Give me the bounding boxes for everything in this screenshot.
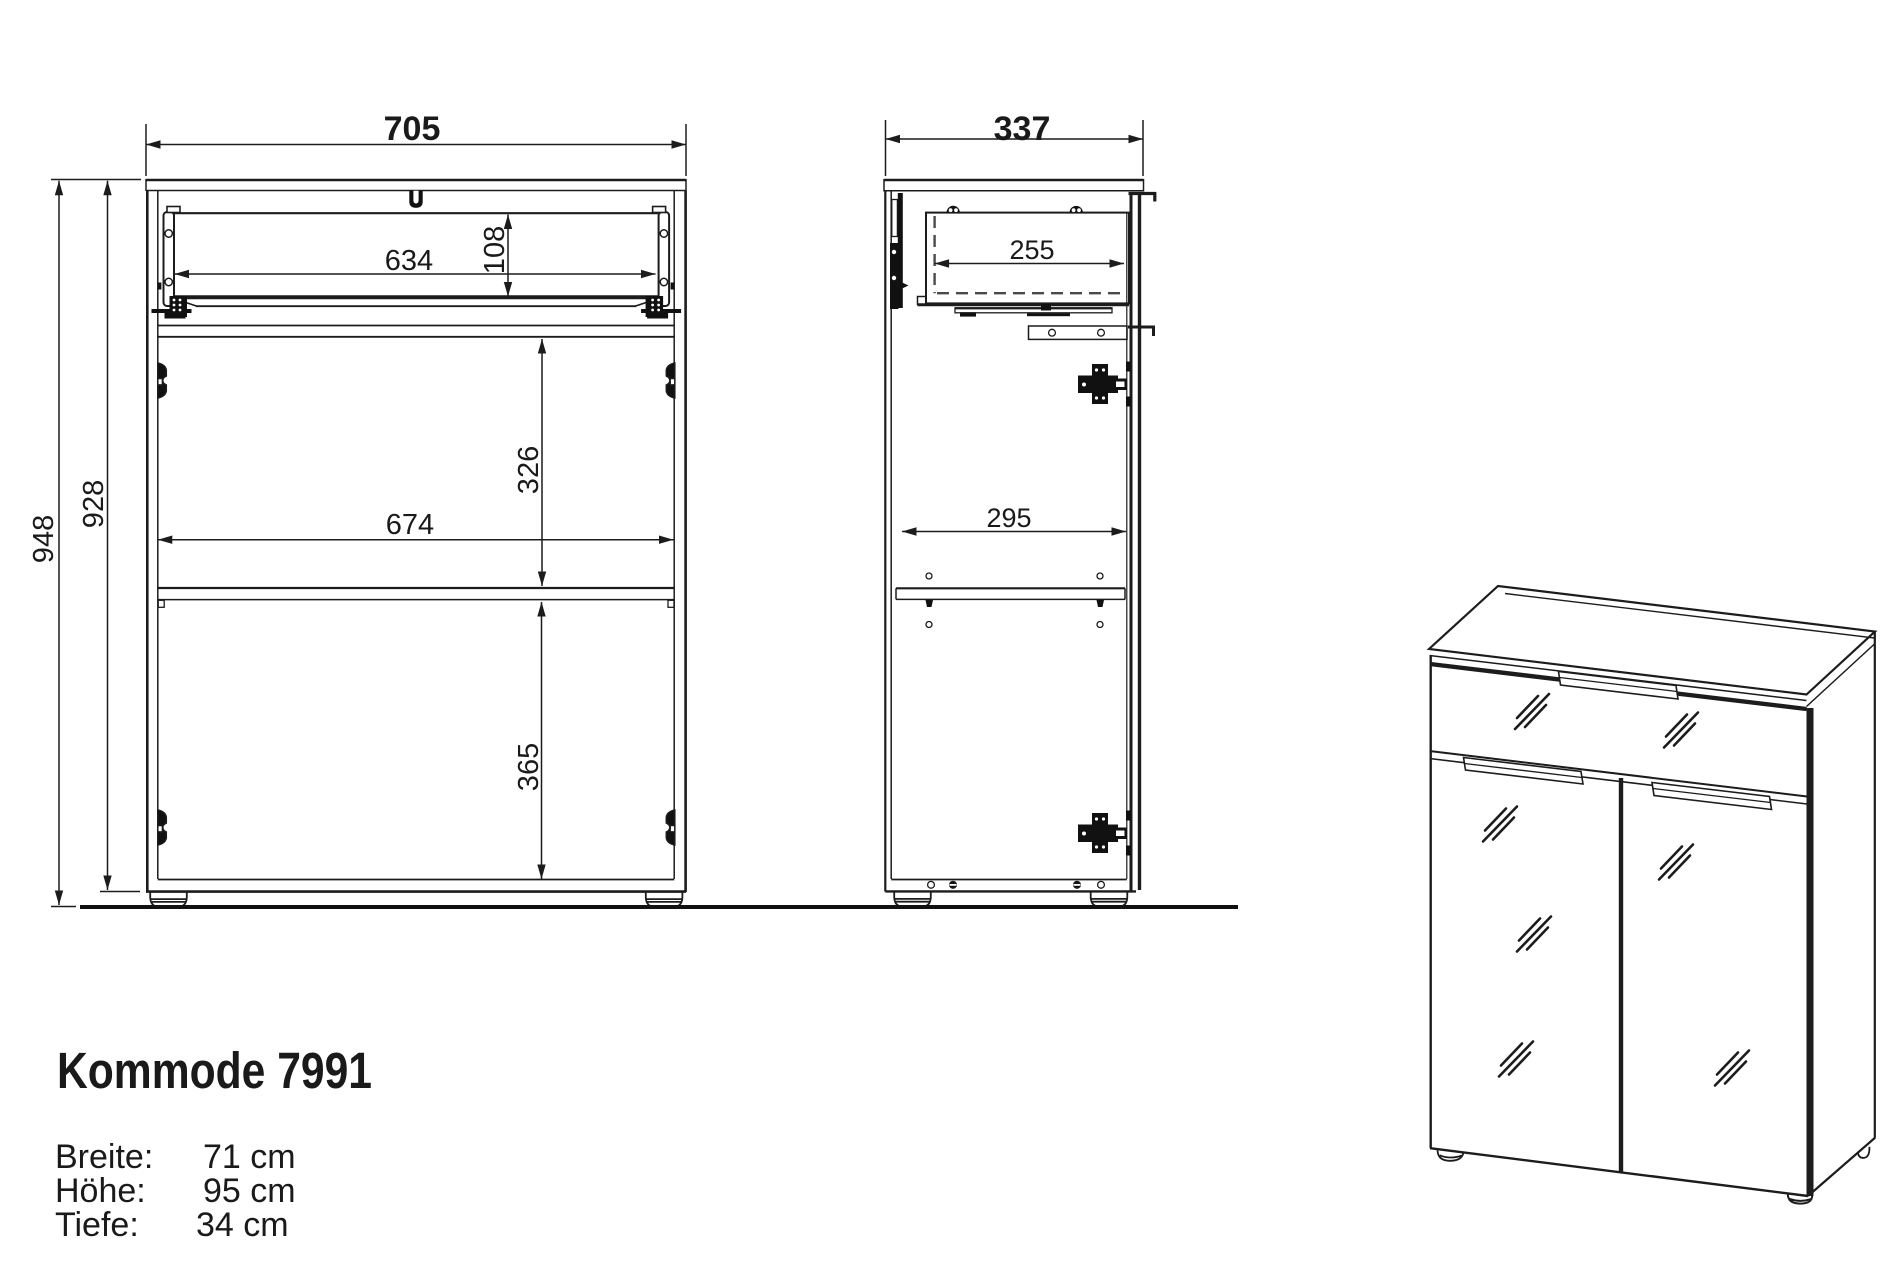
svg-text:928: 928 [78, 480, 110, 528]
svg-text:71 cm: 71 cm [203, 1138, 296, 1176]
svg-text:705: 705 [384, 110, 441, 148]
svg-text:Tiefe:: Tiefe: [55, 1206, 139, 1244]
svg-text:634: 634 [385, 245, 433, 277]
svg-text:674: 674 [386, 509, 434, 541]
svg-text:108: 108 [479, 226, 511, 274]
svg-text:34 cm: 34 cm [196, 1206, 289, 1244]
svg-text:Breite:: Breite: [55, 1138, 153, 1176]
svg-text:95 cm: 95 cm [203, 1172, 296, 1210]
svg-text:365: 365 [513, 743, 545, 791]
svg-text:326: 326 [513, 446, 545, 494]
svg-text:255: 255 [1009, 235, 1054, 265]
svg-text:295: 295 [986, 503, 1031, 533]
svg-text:948: 948 [28, 515, 60, 563]
svg-text:Kommode 7991: Kommode 7991 [57, 1042, 372, 1099]
svg-text:Höhe:: Höhe: [55, 1172, 146, 1210]
svg-text:337: 337 [994, 110, 1051, 148]
